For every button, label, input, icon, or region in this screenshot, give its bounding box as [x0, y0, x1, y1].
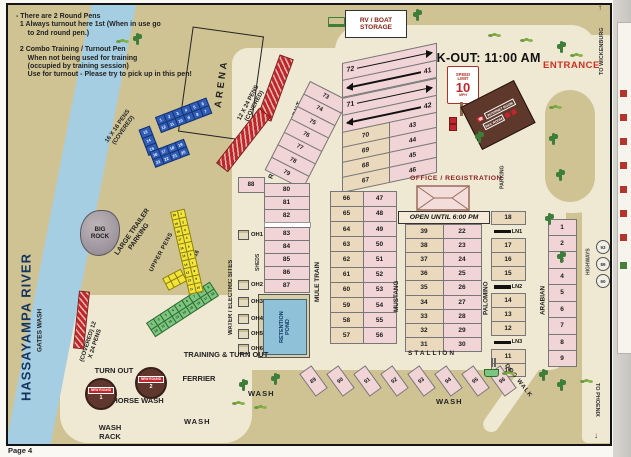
shed-icon — [238, 230, 249, 240]
round-pen-1: NEW ROUND 1 — [85, 378, 117, 410]
site-cell: 88 — [238, 177, 265, 193]
water-electric-label: WATER / ELECTRIC SITES — [226, 241, 236, 353]
stop-sign-icon — [449, 117, 457, 124]
site-cell: 66 — [330, 191, 364, 207]
site-cell: 49 — [363, 221, 397, 237]
site-cell: 65 — [330, 206, 364, 222]
site-cell: 81 — [264, 196, 310, 210]
legend-swatch — [620, 210, 627, 217]
site-cell: 5 — [548, 284, 577, 301]
retention-pond-label: RETENTION POND — [277, 304, 293, 350]
arena-label: ARENA — [211, 49, 232, 120]
site-cell: 58 — [330, 312, 364, 328]
ferrier-label: FERRIER — [174, 374, 224, 383]
ln-marker: LN1 — [491, 224, 526, 239]
ln-marker: LN3 — [491, 335, 526, 350]
bush-icon — [584, 379, 589, 382]
big-rock: BIG ROCK — [80, 210, 120, 256]
phone-icon: ☎ — [476, 115, 484, 123]
site-cell: 63 — [330, 236, 364, 252]
oh-site: OH5 — [238, 329, 263, 339]
sheds-label: SHEDS — [254, 247, 262, 277]
water-trough-icon — [484, 369, 499, 377]
turn-out-label: TURN OUT — [92, 367, 136, 376]
site-cell: 24 — [443, 252, 482, 267]
speed-limit-sign: SPEED LIMIT 10 MPH — [447, 66, 479, 104]
site-cell: 89 — [299, 365, 328, 396]
big-rock-label: BIG ROCK — [88, 226, 112, 240]
ln-bar-icon — [494, 285, 511, 289]
wash-label: WASH — [184, 417, 211, 426]
to-phoenix-text: TO PHOENIX — [594, 383, 600, 417]
site-cell: 34 — [405, 295, 444, 310]
site-cell: 16 — [491, 252, 526, 267]
to-wickenburg-label: TO WICKENBURG — [596, 9, 608, 93]
highway-shield-93: 93 — [596, 240, 610, 254]
site-cell: 29 — [443, 323, 482, 338]
oh-label: OH1 — [251, 232, 263, 238]
cactus-icon — [559, 169, 562, 181]
site-cell: 35 — [405, 280, 444, 295]
cactus-icon — [560, 251, 563, 263]
cactus-icon — [552, 133, 555, 145]
rv-boat-storage-box: RV / BOAT STORAGE — [345, 10, 407, 38]
cactus-icon — [548, 213, 551, 225]
site-cell: 22 — [443, 224, 482, 239]
oh-site: OH3 — [238, 297, 263, 307]
cactus-icon — [242, 379, 245, 391]
round-pen-number: 2 — [149, 384, 152, 390]
mule-train-label: MULE TRAIN — [312, 250, 323, 314]
legend-swatch — [620, 162, 627, 169]
amenity-icon — [511, 108, 518, 115]
legend-swatch — [620, 90, 627, 97]
pavilion-icon — [416, 185, 470, 211]
cactus-icon — [542, 369, 545, 381]
site-cell: 9 — [548, 350, 577, 367]
site-cell: 36 — [405, 266, 444, 281]
wash-label: WASH — [248, 389, 275, 398]
shed-icon — [238, 280, 249, 290]
site-cell: 7 — [548, 317, 577, 334]
cactus-icon — [560, 379, 563, 391]
ln-label: LN1 — [512, 229, 522, 235]
oh-site: OH1 — [238, 230, 263, 240]
restroom-icon — [505, 112, 512, 119]
site-cell: 50 — [363, 236, 397, 252]
palomino-label: PALOMINO — [481, 269, 491, 327]
south-arrow-icon: ↓ — [594, 431, 598, 440]
site-cell: 6 — [548, 301, 577, 318]
wash-label: WASH — [436, 397, 463, 406]
page-number-label: Page 4 — [8, 446, 32, 455]
palomino-sites: 18 LN1 17 16 15 LN2 14 13 12 LN3 11 10 — [491, 211, 525, 377]
retention-pond: RETENTION POND — [258, 294, 310, 358]
pullthrough-sites: 72 41 71 42 70696867 43444546 — [342, 43, 436, 192]
site-cell: 83 — [264, 227, 310, 241]
site-cell: 4 — [548, 268, 577, 285]
upper-pens-label: UPPER PENS — [149, 232, 175, 273]
bush-icon — [553, 105, 558, 108]
site-cell: 94 — [434, 365, 463, 396]
site-cell: 12 — [491, 321, 526, 336]
site-cell: 51 — [363, 251, 397, 267]
site-cell: 71 — [347, 100, 355, 109]
round-pen-number: 1 — [99, 395, 102, 401]
river-label: HASSAYAMPA RIVER — [16, 240, 36, 415]
legend-swatch — [620, 138, 627, 145]
site-cell: 41 — [424, 66, 432, 75]
site-cell: 42 — [424, 101, 432, 110]
bush-icon — [506, 371, 511, 374]
site-cell: 56 — [363, 327, 397, 343]
mustang-sites: 393837363534333231 222324252627282930 — [405, 224, 481, 352]
shed-icon — [238, 297, 249, 307]
highways-label: HIGHWAYS — [584, 235, 593, 289]
sites-70-67: 70696867 — [342, 123, 389, 193]
rv-park-map: HASSAYAMPA RIVER - There are 2 Round Pen… — [6, 3, 612, 446]
new-round-badge: NEW ROUND — [138, 376, 163, 382]
legend-swatch — [620, 186, 627, 193]
site-cell: 80 — [264, 183, 310, 197]
site-cell: 32 — [405, 323, 444, 338]
site-cell: 82 — [264, 209, 310, 223]
sites-66-57: 66656463626160595857 — [330, 191, 363, 343]
site-cell: 18 — [491, 211, 526, 226]
site-cell: 48 — [363, 206, 397, 222]
shield-number: 93 — [600, 245, 605, 250]
site-cell: 14 — [491, 293, 526, 308]
site-cell: 33 — [405, 309, 444, 324]
shed-icon — [238, 329, 249, 339]
ln-marker: LN2 — [491, 280, 526, 295]
new-round-badge: NEW ROUND — [88, 387, 113, 393]
oh-site: OH4 — [238, 314, 263, 324]
site-cell: 13 — [491, 307, 526, 322]
site-cell: 86 — [264, 266, 310, 280]
site-cell: 15 — [491, 266, 526, 281]
entrance-label: ENTRANCE — [543, 60, 600, 71]
to-wickenburg-text: TO WICKENBURG — [599, 27, 605, 75]
site-cell: 59 — [330, 297, 364, 313]
site-cell: 47 — [363, 191, 397, 207]
legend-swatch — [620, 262, 627, 269]
oh-site: OH2 — [238, 280, 263, 290]
bush-icon — [574, 53, 579, 56]
site-cell: 26 — [443, 280, 482, 295]
cactus-icon — [478, 131, 481, 143]
site-cell: 37 — [405, 252, 444, 267]
stallion-label: STALLION — [408, 350, 456, 357]
cactus-icon — [136, 33, 139, 45]
ln-bar-icon — [494, 341, 511, 345]
horse-wash-label: HORSE WASH — [112, 397, 164, 406]
site-cell: 90 — [326, 365, 355, 396]
ln-bar-icon — [494, 230, 511, 234]
rv-boat-storage-label: RV / BOAT STORAGE — [346, 17, 406, 32]
site-cell: 2 — [548, 235, 577, 252]
site-cell: 23 — [443, 238, 482, 253]
bush-icon — [236, 401, 241, 404]
highway-shield-89: 89 — [596, 257, 610, 271]
gates-wash-label: GATES WASH — [34, 295, 46, 365]
shield-number: 60 — [600, 279, 605, 284]
site-cell: 85 — [264, 253, 310, 267]
bush-icon — [120, 39, 125, 42]
open-until-banner: OPEN UNTIL 6:00 PM — [398, 211, 490, 224]
oh-label: OH4 — [251, 316, 263, 322]
large-trailer-parking-label: LARGE TRAILER PARKING — [113, 206, 159, 263]
site-cell: 28 — [443, 309, 482, 324]
mustang-label: MUSTANG — [391, 267, 402, 325]
sites-22-30: 222324252627282930 — [443, 224, 481, 352]
cactus-icon — [560, 41, 563, 53]
cactus-icon — [416, 9, 419, 21]
mule-train-sites: 66656463626160595857 4748495051525354555… — [330, 191, 396, 343]
site-cell: 27 — [443, 295, 482, 310]
faucet-icon — [494, 358, 496, 367]
scanned-map-page: { "page": {"label": "Page 4"}, "notes": … — [0, 0, 631, 457]
site-cell: 91 — [353, 365, 382, 396]
office-registration-label: OFFICE / REGISTRATION — [398, 175, 514, 182]
cactus-icon — [274, 373, 277, 385]
ln-label: LN3 — [512, 339, 522, 345]
site-cell: 92 — [380, 365, 409, 396]
site-cell: 8 — [548, 334, 577, 351]
site-cell: 25 — [443, 266, 482, 281]
to-phoenix-label: TO PHOENIX — [592, 369, 602, 431]
stallion-sites: 8990919293949596 — [306, 367, 510, 395]
ln-label: LN2 — [512, 284, 522, 290]
shed-icon — [238, 314, 249, 324]
shield-number: 89 — [600, 262, 605, 267]
bench-icon — [328, 17, 345, 25]
bush-icon — [492, 33, 497, 36]
west-sites-80-82: 808182 — [264, 183, 309, 222]
oh-label: OH5 — [251, 331, 263, 337]
pen-cell: 20 — [177, 146, 190, 158]
note-line: 1 Always turnout here 1st (When in use g… — [16, 21, 256, 29]
site-cell: 57 — [330, 327, 364, 343]
site-cell: 61 — [330, 267, 364, 283]
sites-43-46: 43444546 — [389, 113, 436, 183]
small-yellow-pens — [162, 269, 186, 290]
open-until-text: OPEN UNTIL 6:00 PM — [410, 214, 479, 221]
site-cell: 62 — [330, 251, 364, 267]
wash-rack-label: WASH RACK — [88, 424, 132, 441]
oh-label: OH3 — [251, 299, 263, 305]
bush-icon — [258, 405, 263, 408]
arabian-sites: 123456789 — [548, 219, 576, 367]
site-88: 88 — [238, 177, 264, 192]
site-cell: 93 — [407, 365, 436, 396]
site-cell: 60 — [330, 282, 364, 298]
site-cell: 38 — [405, 238, 444, 253]
legend-swatch — [620, 234, 627, 241]
bush-icon — [524, 38, 529, 41]
site-cell: 72 — [347, 65, 355, 74]
west-sites-83-87: 8384858687 — [264, 227, 309, 292]
site-cell: 87 — [264, 279, 310, 293]
training-turn-out-label: TRAINING & TURN OUT — [180, 351, 272, 360]
site-cell: 1 — [548, 219, 577, 236]
note-line: - There are 2 Round Pens — [16, 13, 256, 21]
stop-sign-icon — [449, 124, 457, 131]
site-cell: 64 — [330, 221, 364, 237]
parking-label: PARKING — [498, 155, 507, 199]
site-cell: 39 — [405, 224, 444, 239]
speed-sign-value: 10 — [456, 81, 470, 94]
sites-39-31: 393837363534333231 — [405, 224, 443, 352]
highway-shield-60: 60 — [596, 274, 610, 288]
oh-label: OH2 — [251, 282, 263, 288]
pen-cell: 10 — [193, 282, 203, 293]
round-pen-2: NEW ROUND 2 — [135, 367, 167, 399]
arabian-label: ARABIAN — [538, 273, 548, 327]
legend-swatch — [620, 114, 627, 121]
north-arrow-icon: ↑ — [598, 3, 602, 12]
speed-sign-unit: MPH — [459, 94, 467, 98]
site-cell: 17 — [491, 238, 526, 253]
site-cell: 84 — [264, 240, 310, 254]
